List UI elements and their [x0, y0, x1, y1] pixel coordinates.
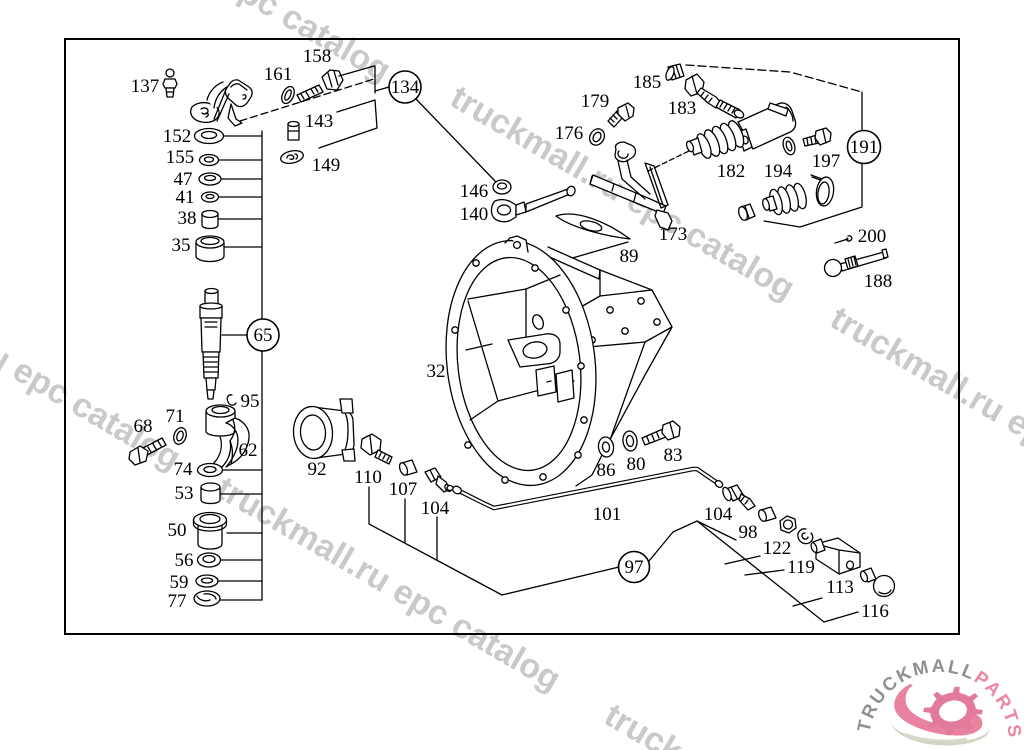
svg-text:194: 194	[764, 161, 793, 182]
svg-text:179: 179	[581, 91, 610, 112]
svg-text:truckmall.ru epc catalog: truckmall.ru epc catalog	[824, 299, 1024, 529]
svg-text:101: 101	[593, 504, 622, 525]
svg-text:92: 92	[308, 459, 327, 480]
svg-text:152: 152	[163, 126, 192, 147]
svg-text:110: 110	[354, 467, 382, 488]
svg-text:50: 50	[168, 520, 187, 541]
svg-text:71: 71	[166, 406, 185, 427]
svg-text:89: 89	[620, 246, 639, 267]
svg-text:188: 188	[864, 271, 893, 292]
svg-text:200: 200	[858, 226, 887, 247]
svg-text:104: 104	[704, 504, 733, 525]
svg-text:113: 113	[826, 577, 854, 598]
svg-text:134: 134	[391, 77, 420, 98]
svg-text:185: 185	[633, 72, 662, 93]
svg-text:56: 56	[175, 550, 194, 571]
svg-text:98: 98	[739, 522, 758, 543]
svg-text:38: 38	[178, 208, 197, 229]
svg-text:143: 143	[305, 111, 334, 132]
svg-text:32: 32	[427, 361, 446, 382]
svg-text:59: 59	[170, 572, 189, 593]
svg-text:107: 107	[389, 479, 418, 500]
svg-text:197: 197	[812, 151, 841, 172]
svg-text:95: 95	[241, 391, 260, 412]
svg-text:80: 80	[627, 454, 646, 475]
svg-text:97: 97	[625, 557, 644, 578]
svg-text:86: 86	[597, 460, 616, 481]
svg-text:161: 161	[264, 64, 293, 85]
svg-text:83: 83	[664, 445, 683, 466]
svg-text:77: 77	[168, 591, 187, 612]
svg-text:149: 149	[312, 155, 341, 176]
svg-text:74: 74	[174, 459, 194, 480]
svg-text:104: 104	[421, 498, 450, 519]
svg-text:119: 119	[787, 557, 815, 578]
svg-text:182: 182	[717, 161, 746, 182]
svg-text:183: 183	[668, 98, 697, 119]
svg-text:53: 53	[175, 483, 194, 504]
svg-text:191: 191	[850, 137, 879, 158]
svg-text:truckmall.ru epc catalog: truckmall.ru epc catalog	[40, 0, 397, 90]
svg-text:158: 158	[303, 46, 332, 67]
svg-text:176: 176	[555, 123, 584, 144]
svg-text:155: 155	[166, 147, 195, 168]
svg-text:62: 62	[239, 440, 258, 461]
svg-text:173: 173	[659, 224, 688, 245]
svg-text:65: 65	[254, 325, 273, 346]
svg-text:140: 140	[460, 204, 489, 225]
svg-text:68: 68	[134, 416, 153, 437]
svg-text:137: 137	[131, 76, 160, 97]
svg-text:146: 146	[460, 181, 489, 202]
svg-text:41: 41	[176, 187, 195, 208]
svg-text:35: 35	[172, 235, 191, 256]
svg-text:116: 116	[861, 601, 889, 622]
svg-text:122: 122	[763, 538, 792, 559]
